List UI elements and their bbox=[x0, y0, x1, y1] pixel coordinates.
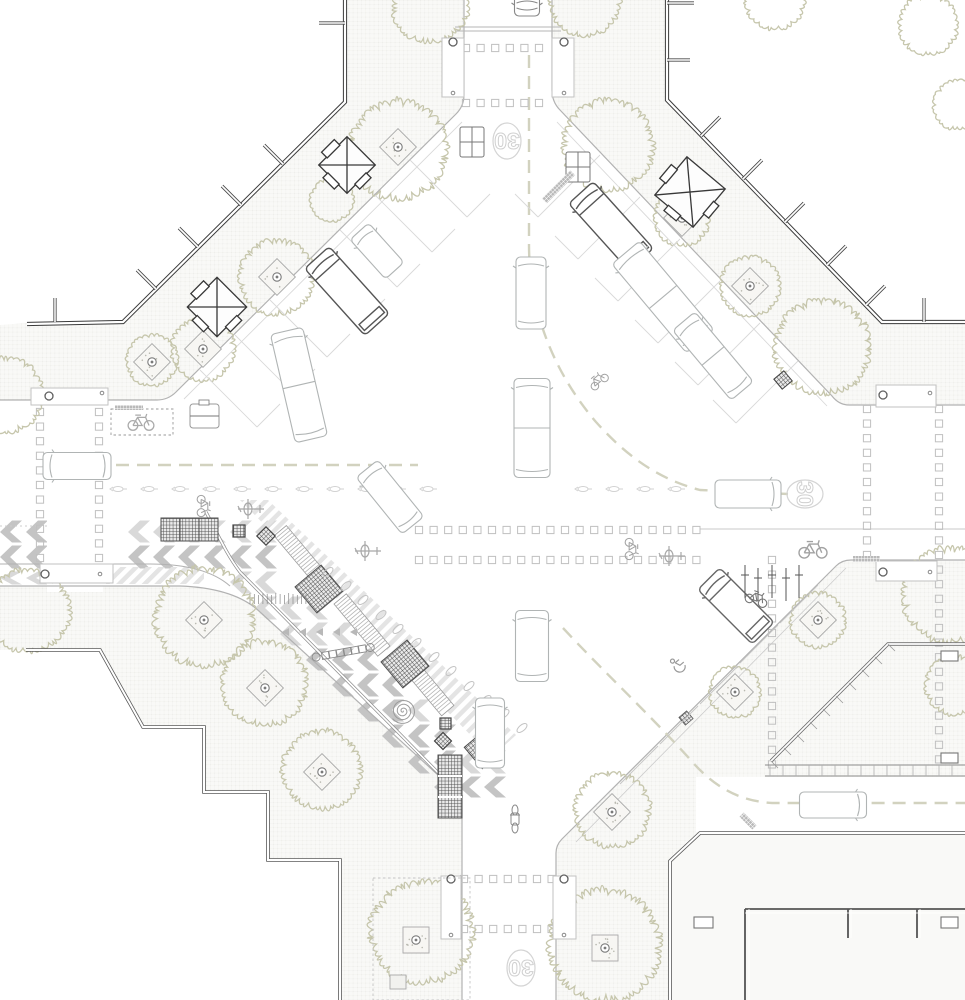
svg-text:30: 30 bbox=[508, 955, 534, 981]
svg-text:30: 30 bbox=[494, 128, 520, 154]
svg-text:30: 30 bbox=[792, 481, 818, 507]
